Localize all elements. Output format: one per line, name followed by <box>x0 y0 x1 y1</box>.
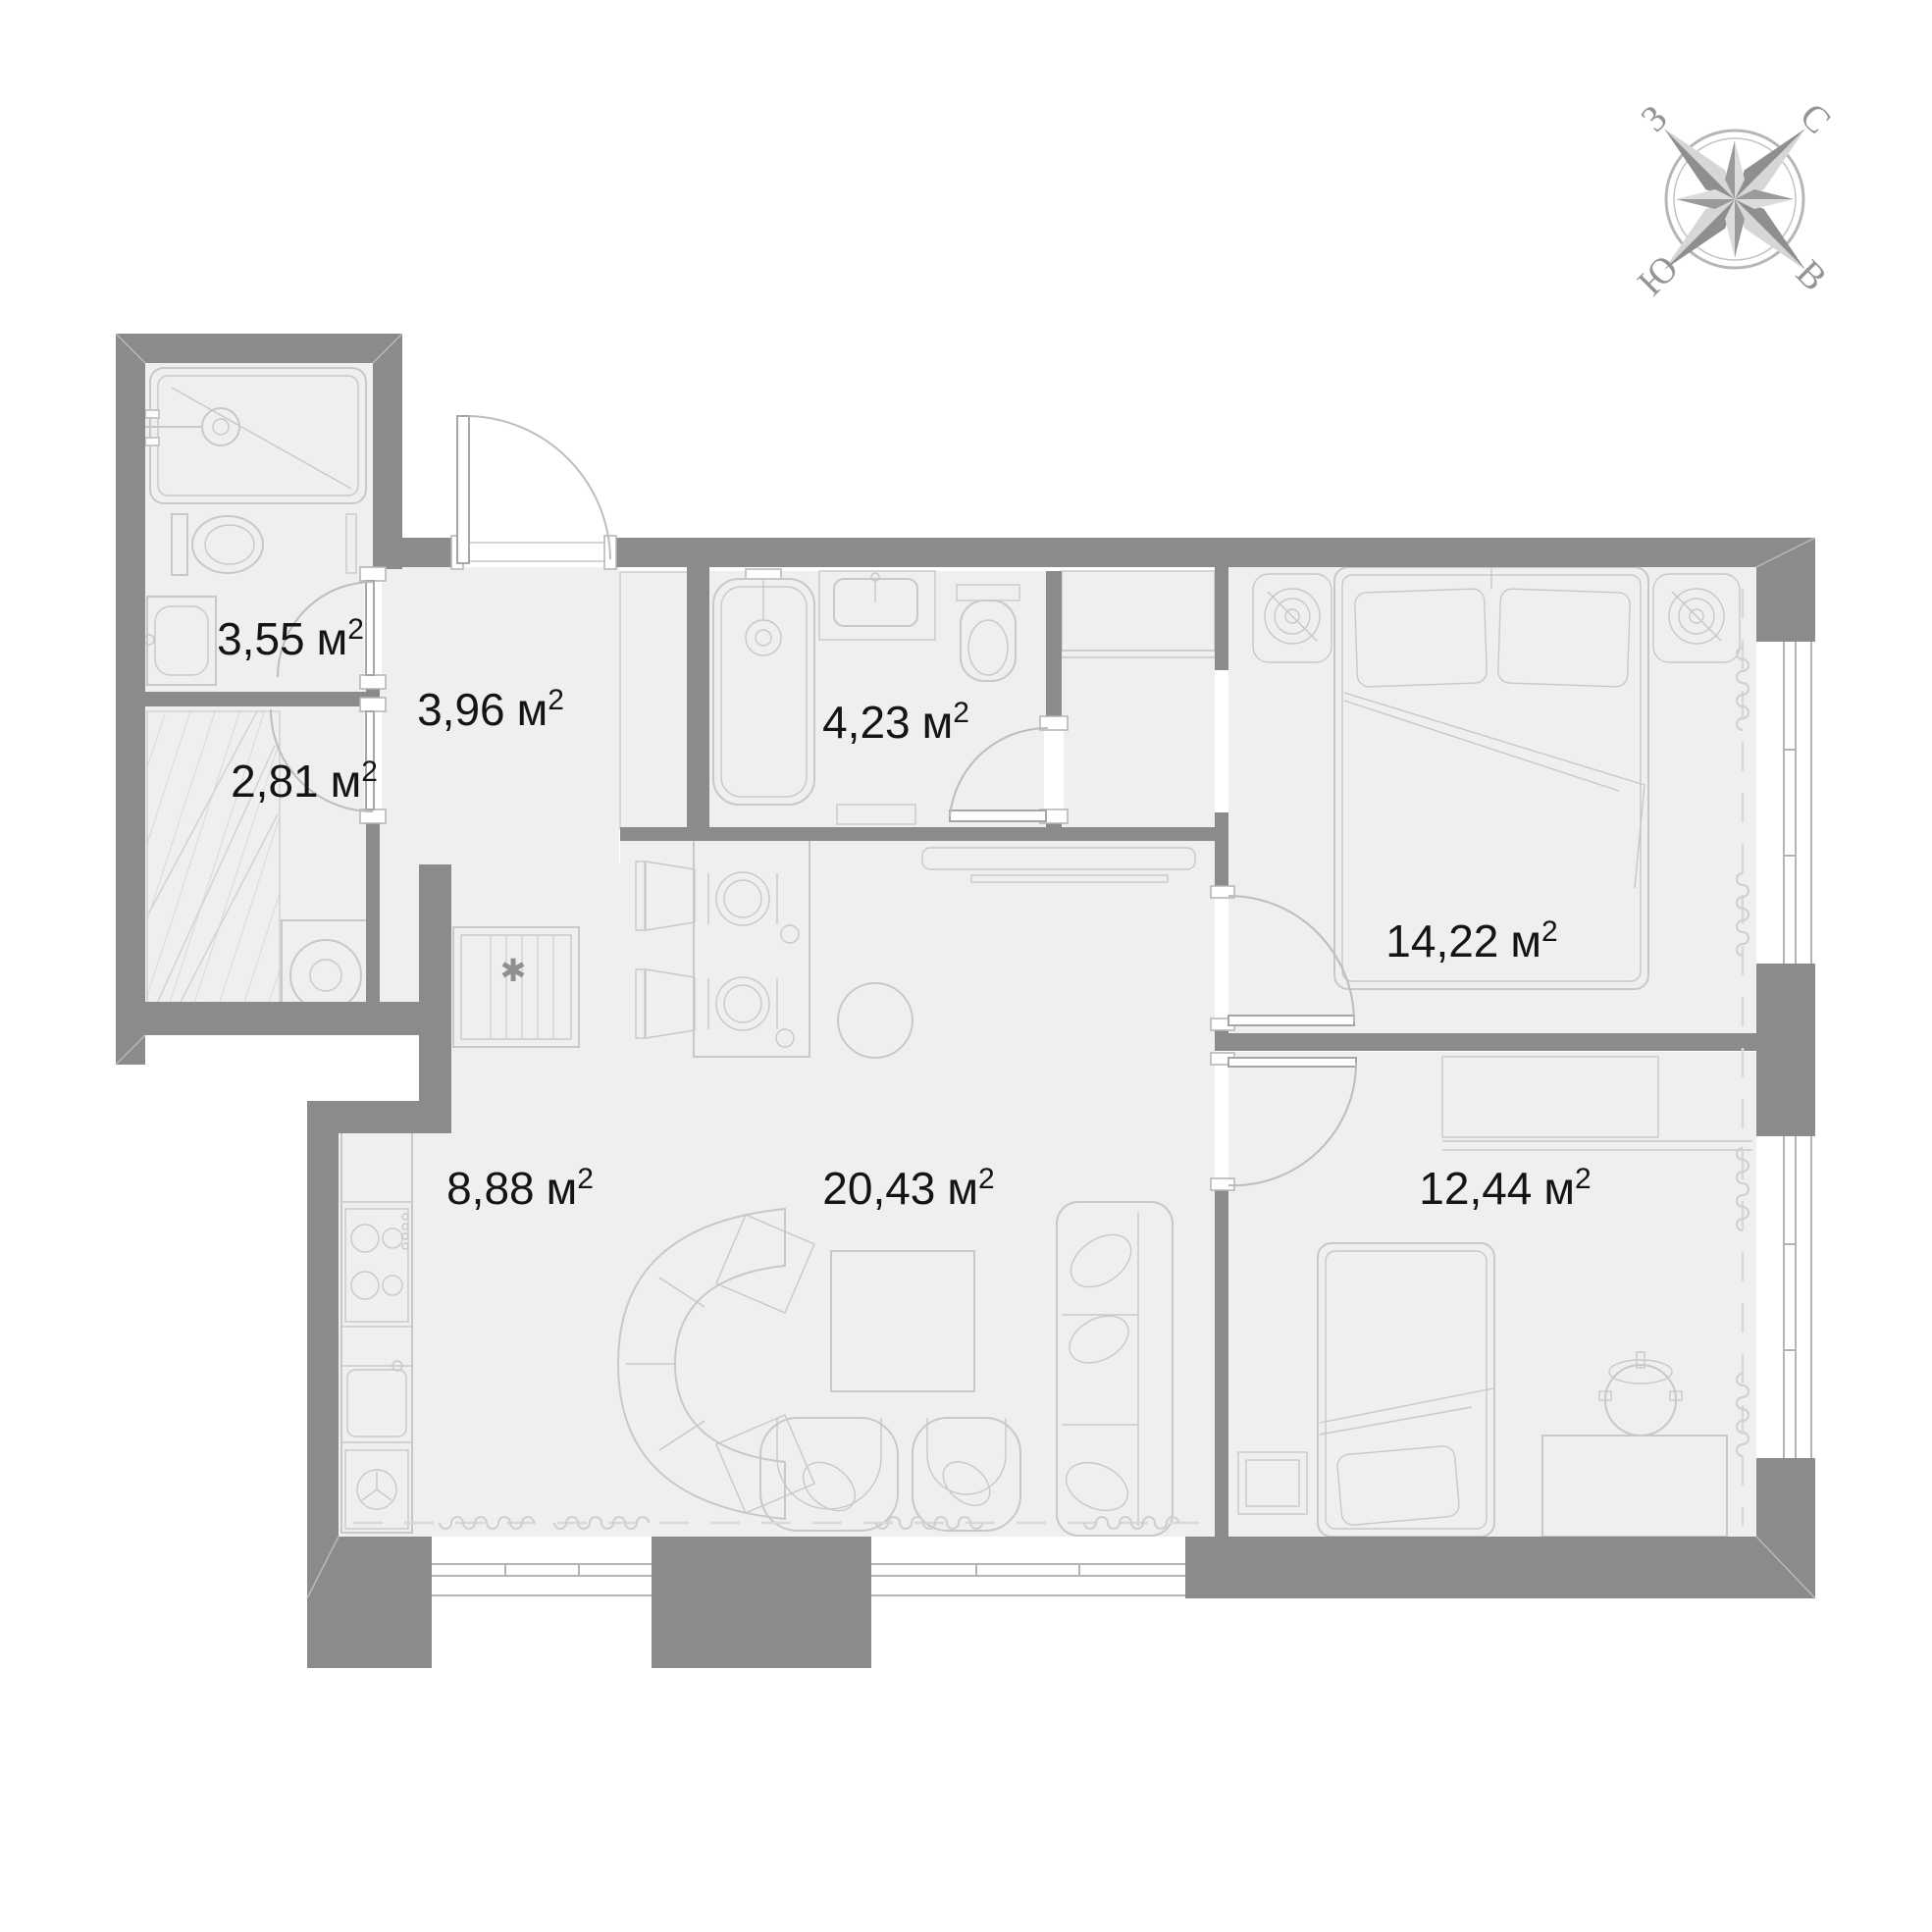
kitchen-marker: ✱ <box>500 953 527 988</box>
compass-rose: С З В Ю <box>1630 95 1838 303</box>
room-label-kitchen: 8,88м2 <box>446 1163 594 1214</box>
room-label-hallway: 3,96м2 <box>417 684 564 735</box>
floor-plan-page: 3,55м2 2,81м2 3,96м2 4,23м2 14,22м2 8,88… <box>0 0 1932 1932</box>
door-leaf <box>1228 1058 1356 1067</box>
door-leaf <box>457 416 469 563</box>
room-label-bathroom: 4,23м2 <box>822 697 969 748</box>
room-label-living: 20,43м2 <box>822 1163 994 1214</box>
window-bedroom-second <box>1756 1136 1815 1458</box>
room-label-bedroom-second: 12,44м2 <box>1419 1163 1591 1214</box>
room-label-shower: 3,55м2 <box>217 613 364 664</box>
floor-plan: 3,55м2 2,81м2 3,96м2 4,23м2 14,22м2 8,88… <box>0 0 1932 1932</box>
door-leaf <box>366 581 374 675</box>
room-label-storage: 2,81м2 <box>231 756 378 807</box>
window-kitchen <box>432 1537 652 1598</box>
compass-star-icon <box>1654 119 1815 280</box>
door-leaf <box>1228 1016 1354 1025</box>
window-living-room <box>871 1537 1185 1598</box>
room-label-bedroom: 14,22м2 <box>1385 915 1557 966</box>
door-leaf <box>950 810 1046 821</box>
entrance-door <box>451 416 616 569</box>
window-bedroom <box>1756 642 1815 964</box>
